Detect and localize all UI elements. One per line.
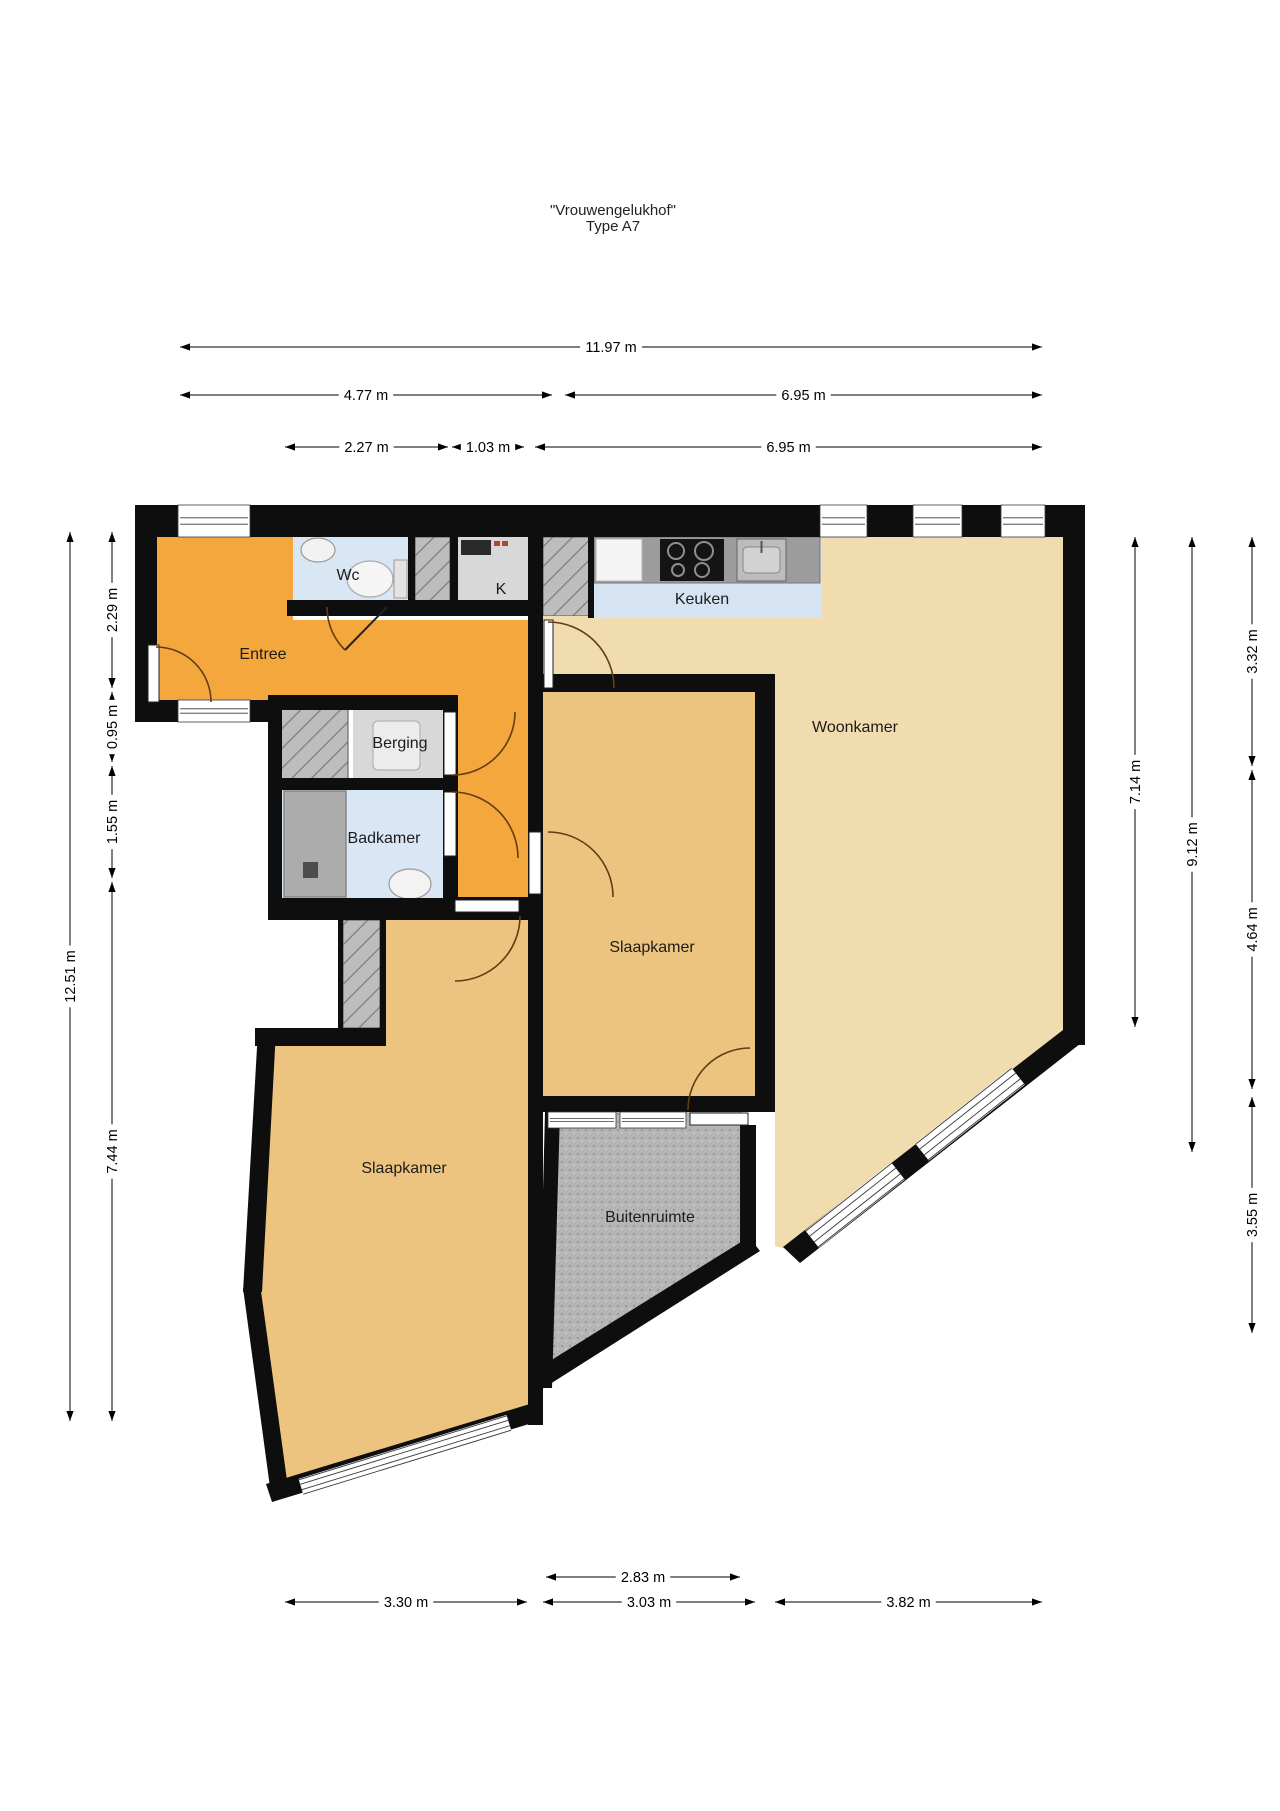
room-slaapkamer-2 bbox=[543, 692, 775, 1096]
dimension-arrowhead bbox=[438, 443, 448, 450]
room-slaapkamer-1 bbox=[246, 918, 543, 1498]
dimension-label-group: 12.51 m bbox=[61, 946, 79, 1008]
door-leaf-badkamer-door bbox=[444, 792, 456, 856]
dimension-arrowhead bbox=[66, 1411, 73, 1421]
dimension-left-3: 1.55 m bbox=[103, 766, 121, 878]
wc-sink bbox=[301, 538, 335, 562]
dimension-top-r3c: 6.95 m bbox=[535, 438, 1042, 456]
dimension-arrowhead bbox=[542, 391, 552, 398]
dimension-right-3: 3.32 m bbox=[1243, 537, 1261, 766]
k-red-item bbox=[494, 541, 500, 546]
window bbox=[820, 505, 867, 537]
dimension-arrowhead bbox=[180, 343, 190, 350]
dimension-arrowhead bbox=[452, 443, 462, 450]
plan-subtitle: Type A7 bbox=[0, 219, 1226, 235]
dimension-label: 1.03 m bbox=[466, 440, 510, 456]
dimension-arrowhead bbox=[1248, 1323, 1255, 1333]
wall bbox=[408, 537, 415, 608]
door-leaf-woonkamer-door bbox=[544, 620, 553, 688]
dimension-label-group: 7.14 m bbox=[1126, 755, 1144, 809]
dimension-label: 3.55 m bbox=[1245, 1193, 1261, 1237]
room-label-woonkamer: Woonkamer bbox=[812, 719, 899, 736]
dimension-label-group: 1.03 m bbox=[461, 438, 515, 456]
dimension-label-group: 4.77 m bbox=[339, 386, 393, 404]
room-label-buitenruimte: Buitenruimte bbox=[605, 1209, 695, 1226]
dimension-label-group: 3.03 m bbox=[622, 1593, 676, 1611]
dimension-top-left: 4.77 m bbox=[180, 386, 552, 404]
wall bbox=[268, 898, 458, 920]
wall bbox=[338, 920, 343, 1046]
dimension-label: 3.82 m bbox=[886, 1595, 930, 1611]
wall bbox=[1063, 505, 1085, 1045]
wall bbox=[543, 674, 775, 692]
dimension-arrowhead bbox=[1188, 1142, 1195, 1152]
dimension-left-4: 7.44 m bbox=[103, 882, 121, 1421]
dimension-arrowhead bbox=[535, 443, 545, 450]
dimension-arrowhead bbox=[108, 868, 115, 878]
dimension-label: 12.51 m bbox=[63, 950, 79, 1002]
dimension-right-4: 4.64 m bbox=[1243, 770, 1261, 1089]
shower bbox=[284, 791, 346, 897]
dimension-label: 1.55 m bbox=[105, 800, 121, 844]
shower-drain bbox=[303, 862, 318, 878]
dimension-arrowhead bbox=[108, 1411, 115, 1421]
k-red-item bbox=[502, 541, 508, 546]
room-label-wc: Wc bbox=[336, 567, 359, 584]
door-leaf-buitenruimte-door bbox=[690, 1113, 748, 1125]
dimension-label: 7.14 m bbox=[1128, 760, 1144, 804]
dimension-arrowhead bbox=[108, 678, 115, 688]
dimension-label: 4.77 m bbox=[344, 388, 388, 404]
dimension-bottom-buiten: 2.83 m bbox=[546, 1568, 740, 1586]
dimension-arrowhead bbox=[285, 443, 295, 450]
dimension-left-2: 0.95 m bbox=[103, 692, 121, 762]
dimension-label: 2.27 m bbox=[344, 440, 388, 456]
wall bbox=[380, 920, 386, 1046]
wall bbox=[268, 700, 282, 920]
dimension-label-group: 7.44 m bbox=[103, 1124, 121, 1178]
dimension-label: 2.29 m bbox=[105, 588, 121, 632]
dimension-arrowhead bbox=[1131, 1017, 1138, 1027]
wall bbox=[450, 537, 458, 608]
dimension-label: 0.95 m bbox=[105, 705, 121, 749]
dimension-arrowhead bbox=[517, 1598, 527, 1605]
door-leaf-front-door bbox=[148, 645, 159, 702]
dimension-arrowhead bbox=[1032, 343, 1042, 350]
dimension-top-r3b: 1.03 m bbox=[452, 438, 524, 456]
dimension-label: 7.44 m bbox=[105, 1129, 121, 1173]
dimension-arrowhead bbox=[1248, 770, 1255, 780]
dimension-arrowhead bbox=[108, 766, 115, 776]
dimension-label-group: 1.55 m bbox=[103, 795, 121, 849]
wall bbox=[740, 1125, 756, 1253]
window bbox=[620, 1112, 686, 1128]
door-leaf-berging-door bbox=[444, 712, 456, 775]
dimension-label-group: 2.29 m bbox=[103, 583, 121, 637]
dimension-arrowhead bbox=[66, 532, 73, 542]
dimension-label-group: 4.64 m bbox=[1243, 902, 1261, 956]
room-label-entree: Entree bbox=[239, 646, 286, 663]
dimension-label: 3.30 m bbox=[384, 1595, 428, 1611]
room-shaft-b bbox=[543, 537, 590, 616]
room-label-slaapkamer-2: Slaapkamer bbox=[609, 939, 695, 956]
room-label-slaapkamer-1: Slaapkamer bbox=[361, 1160, 447, 1177]
room-shaft-a bbox=[415, 537, 450, 608]
dimension-bottom-2: 3.03 m bbox=[543, 1593, 755, 1611]
dimension-label-group: 0.95 m bbox=[103, 700, 121, 754]
window bbox=[178, 505, 250, 537]
plan-title: "Vrouwengelukhof" bbox=[0, 203, 1226, 219]
dimension-arrowhead bbox=[565, 391, 575, 398]
dimension-label-group: 6.95 m bbox=[761, 438, 815, 456]
title-block: "Vrouwengelukhof" Type A7 bbox=[0, 203, 1226, 235]
floorplan-page: "Vrouwengelukhof" Type A7 EntreeWcKKeuke… bbox=[0, 0, 1280, 1811]
fridge bbox=[596, 539, 642, 581]
dimension-label: 6.95 m bbox=[766, 440, 810, 456]
dimension-arrowhead bbox=[543, 1598, 553, 1605]
room-label-badkamer: Badkamer bbox=[348, 830, 422, 847]
dimension-label-group: 3.30 m bbox=[379, 1593, 433, 1611]
dimension-top-r3a: 2.27 m bbox=[285, 438, 448, 456]
dimension-arrowhead bbox=[1248, 537, 1255, 547]
floorplan-svg: EntreeWcKKeukenWoonkamerBergingBadkamerS… bbox=[0, 0, 1280, 1811]
door-leaf-slaapkamer-2-door bbox=[529, 832, 541, 894]
wall bbox=[588, 537, 594, 618]
wall bbox=[755, 674, 775, 1110]
dimension-arrowhead bbox=[730, 1573, 740, 1580]
dimension-left-total: 12.51 m bbox=[61, 532, 79, 1421]
dimension-label: 3.32 m bbox=[1245, 629, 1261, 673]
dimension-arrowhead bbox=[1032, 391, 1042, 398]
wall bbox=[268, 695, 458, 710]
room-shaft-d bbox=[343, 920, 380, 1028]
room-label-kast: K bbox=[496, 581, 507, 598]
dimension-label-group: 9.12 m bbox=[1183, 817, 1201, 871]
window bbox=[548, 1112, 616, 1128]
dimension-label-group: 3.55 m bbox=[1243, 1188, 1261, 1242]
dimension-arrowhead bbox=[1248, 1097, 1255, 1107]
dimension-label: 9.12 m bbox=[1185, 822, 1201, 866]
dimension-label: 6.95 m bbox=[781, 388, 825, 404]
window bbox=[1001, 505, 1045, 537]
dimension-arrowhead bbox=[1248, 1079, 1255, 1089]
dimension-label-group: 2.27 m bbox=[339, 438, 393, 456]
dimension-label: 11.97 m bbox=[585, 340, 636, 356]
dimension-left-1: 2.29 m bbox=[103, 532, 121, 688]
dimension-arrowhead bbox=[1188, 537, 1195, 547]
dimension-top-total: 11.97 m bbox=[180, 338, 1042, 356]
dimension-label-group: 3.32 m bbox=[1243, 624, 1261, 678]
dimension-arrowhead bbox=[108, 882, 115, 892]
room-shaft-c bbox=[280, 708, 348, 780]
dimension-arrowhead bbox=[514, 443, 524, 450]
dimension-label-group: 11.97 m bbox=[580, 338, 642, 356]
dimension-right-2: 9.12 m bbox=[1183, 537, 1201, 1152]
dimension-label-group: 3.82 m bbox=[881, 1593, 935, 1611]
dimension-arrowhead bbox=[745, 1598, 755, 1605]
dimension-arrowhead bbox=[285, 1598, 295, 1605]
bathroom-sink bbox=[389, 869, 431, 899]
dimension-bottom-1: 3.30 m bbox=[285, 1593, 527, 1611]
toilet-tank bbox=[394, 560, 407, 598]
dimension-arrowhead bbox=[546, 1573, 556, 1580]
window bbox=[913, 505, 962, 537]
wall bbox=[268, 778, 458, 790]
dimension-arrowhead bbox=[180, 391, 190, 398]
dimension-label: 3.03 m bbox=[627, 1595, 671, 1611]
dimension-arrowhead bbox=[1032, 443, 1042, 450]
dimension-label-group: 6.95 m bbox=[776, 386, 830, 404]
door-leaf-slaapkamer-1-door bbox=[455, 900, 519, 912]
dimension-bottom-3: 3.82 m bbox=[775, 1593, 1042, 1611]
dimension-arrowhead bbox=[1032, 1598, 1042, 1605]
dimension-label-group: 2.83 m bbox=[616, 1568, 670, 1586]
dimension-top-right: 6.95 m bbox=[565, 386, 1042, 404]
room-label-keuken: Keuken bbox=[675, 591, 729, 608]
dimension-right-5: 3.55 m bbox=[1243, 1097, 1261, 1333]
room-buitenruimte bbox=[533, 1112, 752, 1378]
wall bbox=[543, 1096, 775, 1112]
window bbox=[178, 700, 250, 722]
dimension-arrowhead bbox=[1131, 537, 1138, 547]
dimension-label: 2.83 m bbox=[621, 1570, 665, 1586]
dimension-arrowhead bbox=[1248, 756, 1255, 766]
dimension-label: 4.64 m bbox=[1245, 907, 1261, 951]
dimension-arrowhead bbox=[775, 1598, 785, 1605]
room-label-berging: Berging bbox=[372, 735, 427, 752]
dimension-right-1: 7.14 m bbox=[1126, 537, 1144, 1027]
k-appliance bbox=[461, 540, 491, 555]
dimension-arrowhead bbox=[108, 532, 115, 542]
